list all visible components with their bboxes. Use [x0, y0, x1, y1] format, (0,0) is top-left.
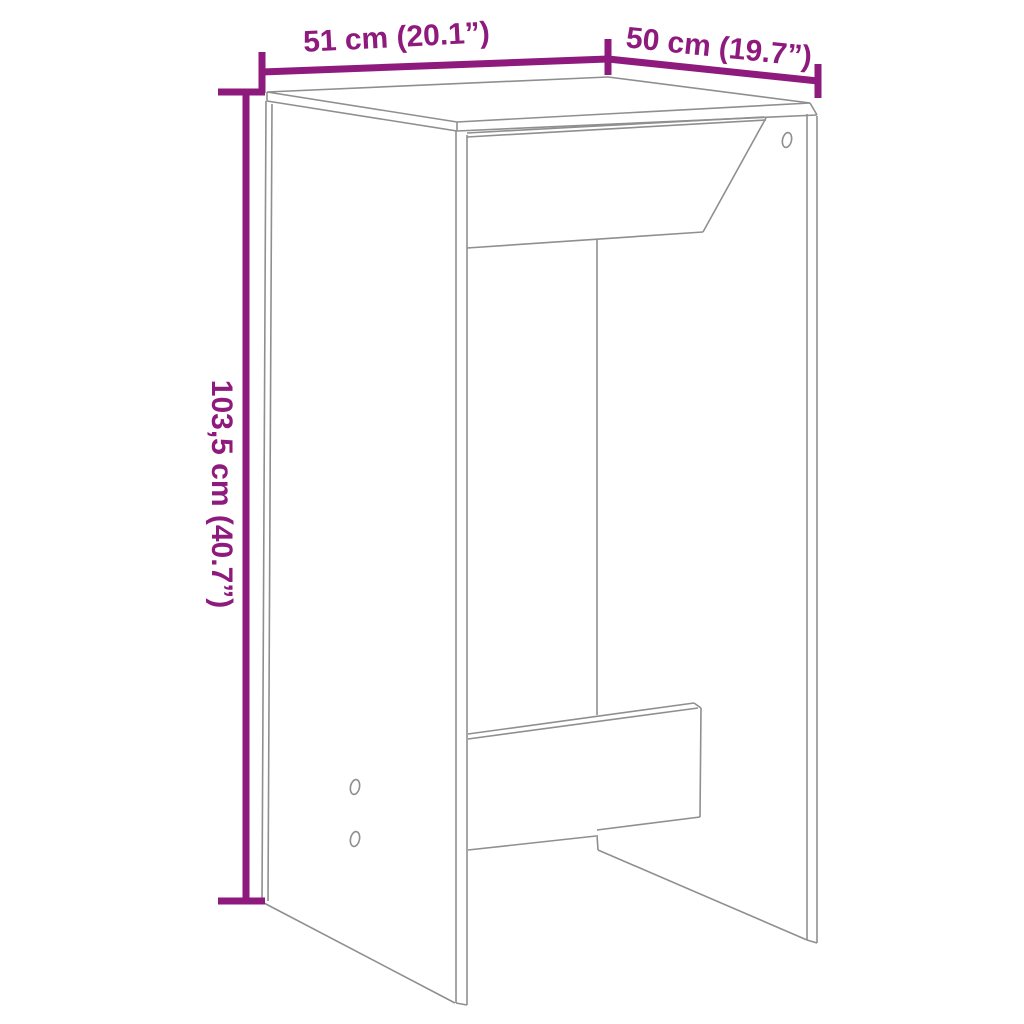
table-edge-line	[700, 708, 701, 817]
table-edge-line	[468, 708, 698, 739]
table-edge-line	[264, 903, 455, 1003]
table-edge-line	[597, 835, 598, 850]
table-edge-line	[810, 103, 817, 115]
table-outline-group	[262, 77, 817, 1005]
bar-table-dimension-diagram: 51 cm (20.1”) 50 cm (19.7”) 103,5 cm (40…	[0, 0, 1024, 1024]
hole-marks-group	[349, 132, 793, 848]
screw-hole-mark	[349, 831, 361, 848]
table-edge-line	[267, 92, 457, 122]
table-edge-line	[608, 77, 810, 103]
table-edge-line	[468, 836, 596, 850]
screw-hole-mark	[781, 132, 793, 149]
width-dimension-label: 51 cm (20.1”)	[302, 16, 490, 59]
screw-hole-mark	[349, 779, 361, 796]
diagram-canvas: 51 cm (20.1”) 50 cm (19.7”) 103,5 cm (40…	[0, 0, 1024, 1024]
table-edge-line	[267, 101, 457, 131]
table-edge-line	[268, 104, 272, 901]
table-edge-line	[807, 940, 817, 943]
table-edge-line	[597, 817, 700, 830]
table-edge-line	[467, 232, 703, 248]
table-edge-line	[598, 850, 807, 940]
height-dimension-label: 103,5 cm (40.7”)	[205, 380, 238, 608]
dimension-line	[262, 59, 608, 72]
table-edge-line	[262, 101, 266, 901]
dimension-lines-group	[218, 39, 818, 901]
table-edge-line	[267, 77, 608, 92]
table-edge-line	[457, 103, 810, 122]
table-edge-line	[468, 703, 694, 734]
table-edge-line	[703, 118, 766, 232]
table-edge-line	[456, 1003, 467, 1005]
table-edge-line	[694, 703, 701, 708]
